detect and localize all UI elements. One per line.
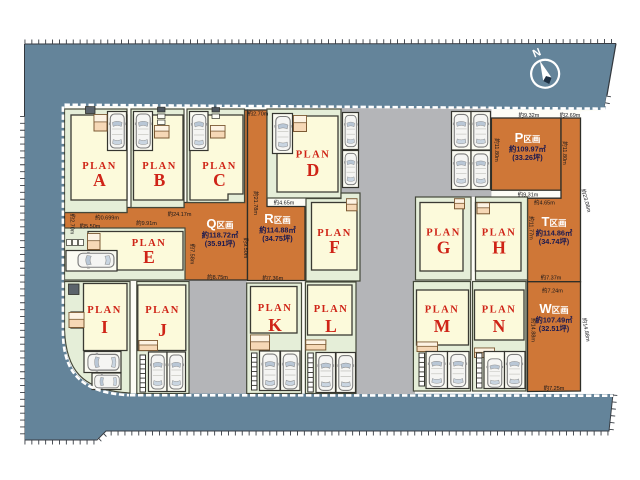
svg-text:約2.70m: 約2.70m [69,214,77,235]
svg-text:(34.75坪): (34.75坪) [262,234,293,243]
svg-text:約7.37m: 約7.37m [541,274,562,282]
svg-text:PLAN: PLAN [87,305,122,316]
svg-text:約0.699m: 約0.699m [95,214,119,222]
svg-text:PLAN: PLAN [482,305,517,316]
svg-text:(33.26坪): (33.26坪) [512,153,543,162]
svg-text:F: F [329,237,340,257]
svg-text:G: G [437,238,451,258]
svg-text:E: E [143,247,155,267]
svg-text:約21.78m: 約21.78m [252,191,260,215]
svg-text:約7.25m: 約7.25m [544,384,565,392]
svg-text:約14.88m: 約14.88m [530,318,538,342]
svg-text:約7.58m: 約7.58m [189,244,197,265]
svg-text:約11.80m: 約11.80m [493,138,501,162]
svg-text:B: B [154,170,166,190]
svg-text:PLAN: PLAN [145,305,180,316]
svg-text:約2.69m: 約2.69m [560,111,581,119]
svg-text:M: M [434,316,451,336]
svg-text:PLAN: PLAN [425,305,460,316]
svg-text:H: H [492,238,506,258]
svg-text:約11.80m: 約11.80m [561,141,569,165]
svg-text:約5.50m: 約5.50m [80,222,101,230]
svg-text:(35.91坪): (35.91坪) [205,239,236,248]
svg-text:約9.31m: 約9.31m [518,191,539,199]
svg-text:PLAN: PLAN [258,303,293,314]
svg-text:約2.70m: 約2.70m [248,110,269,118]
svg-text:約4.65m: 約4.65m [534,199,555,207]
svg-text:約9.32m: 約9.32m [519,111,540,119]
svg-text:約4.65m: 約4.65m [274,199,295,207]
svg-text:K: K [268,315,282,335]
svg-text:PLAN: PLAN [296,150,331,161]
svg-text:(32.51坪): (32.51坪) [539,324,570,333]
svg-text:N: N [493,316,506,336]
svg-text:PLAN: PLAN [314,304,349,315]
svg-text:J: J [158,320,167,340]
svg-text:I: I [101,317,108,337]
svg-text:約9.91m: 約9.91m [136,219,157,227]
svg-text:約24.17m: 約24.17m [168,210,192,218]
svg-text:(34.74坪): (34.74坪) [539,237,570,246]
svg-text:C: C [213,170,226,190]
svg-text:L: L [325,316,337,336]
svg-text:約9.50m: 約9.50m [242,238,250,259]
svg-text:D: D [307,160,320,180]
svg-text:A: A [93,170,106,190]
svg-text:約11.77m: 約11.77m [528,216,536,240]
svg-text:約7.24m: 約7.24m [542,287,563,295]
svg-text:約8.75m: 約8.75m [207,273,228,281]
svg-text:約7.36m: 約7.36m [262,274,283,282]
